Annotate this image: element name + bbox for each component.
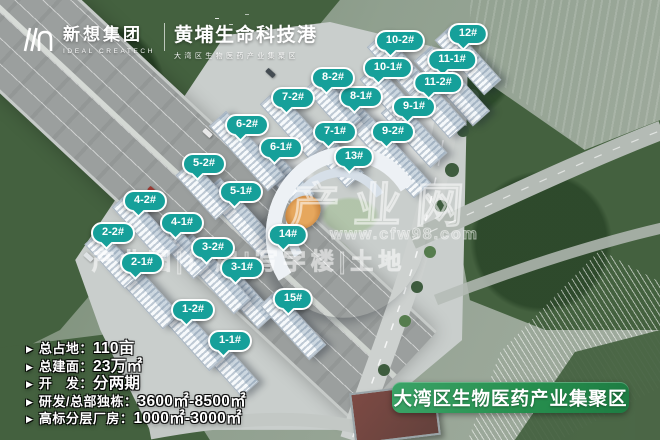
stat-row: ▶总建面：23万㎡ — [26, 359, 246, 377]
project-subtitle: 大湾区生物医药产业集聚区 — [174, 51, 318, 61]
label-tail — [234, 129, 247, 142]
building-label: 5-2# — [182, 153, 226, 175]
label-tail — [380, 136, 393, 149]
label-tail — [268, 152, 281, 165]
building-label: 11-2# — [413, 72, 463, 94]
label-tail — [169, 227, 182, 240]
bullet-triangle-icon: ▶ — [26, 377, 33, 393]
building-label-text: 9-1# — [403, 100, 425, 112]
poster-canvas: 产业网 www.cfw98.com 产业园|厂房|写字楼|土地 1-1#1-2#… — [0, 0, 660, 440]
label-tail — [132, 205, 145, 218]
building-label: 7-1# — [313, 121, 357, 143]
stat-label: 总占地： — [39, 341, 93, 357]
label-tail — [384, 45, 397, 58]
building-label-text: 5-2# — [193, 157, 215, 169]
building-label: 10-1# — [363, 57, 413, 79]
project-title: 黄埔生命科技港 — [174, 20, 318, 47]
building-label-text: 2-2# — [102, 226, 124, 238]
building-label: 14# — [268, 224, 308, 246]
building-label-text: 7-2# — [282, 91, 304, 103]
stat-value: 分两期 — [93, 376, 140, 392]
building-label: 9-1# — [392, 96, 436, 118]
building-label: 3-1# — [220, 257, 264, 279]
building-label-text: 8-2# — [322, 71, 344, 83]
building-label: 12# — [448, 23, 488, 45]
building-label-text: 4-2# — [134, 194, 156, 206]
building-label: 6-1# — [259, 137, 303, 159]
stat-label: 高标分层厂房： — [39, 411, 134, 427]
stats-list: ▶总占地：110亩▶总建面：23万㎡▶开 发：分两期▶研发/总部独栋：3600㎡… — [26, 341, 246, 429]
label-tail — [200, 252, 213, 265]
building-label: 2-2# — [91, 222, 135, 244]
stat-row: ▶总占地：110亩 — [26, 341, 246, 359]
building-label-text: 2-1# — [131, 256, 153, 268]
project-block: 黄埔生命科技港 大湾区生物医药产业集聚区 — [174, 20, 318, 61]
stat-row: ▶研发/总部独栋：3600㎡-8500㎡ — [26, 394, 246, 412]
building-label-text: 6-2# — [236, 118, 258, 130]
building-label: 4-2# — [123, 190, 167, 212]
company-name: 新想集团 — [63, 20, 155, 45]
label-tail — [180, 314, 193, 327]
label-tail — [348, 101, 361, 114]
label-tail — [129, 267, 142, 280]
building-label: 13# — [334, 146, 374, 168]
header: 新想集团 IDEAL CREATECH 黄埔生命科技港 大湾区生物医药产业集聚区 — [18, 20, 318, 62]
company-name-en: IDEAL CREATECH — [63, 48, 155, 55]
company-logo-icon — [18, 21, 54, 62]
header-divider — [164, 23, 165, 51]
label-tail — [229, 272, 242, 285]
building-label-text: 6-1# — [270, 141, 292, 153]
building-label: 3-2# — [191, 237, 235, 259]
building-label-text: 3-1# — [231, 261, 253, 273]
building-label-text: 7-1# — [324, 125, 346, 137]
building-label-text: 4-1# — [171, 216, 193, 228]
building-label: 8-1# — [339, 86, 383, 108]
building-label-text: 12# — [459, 27, 477, 39]
building-label: 11-1# — [427, 49, 477, 71]
building-label-text: 13# — [345, 150, 363, 162]
stat-value: 23万㎡ — [93, 359, 142, 375]
label-tail — [343, 161, 356, 174]
building-label: 2-1# — [120, 252, 164, 274]
stat-row: ▶开 发：分两期 — [26, 376, 246, 394]
building-label: 8-2# — [311, 67, 355, 89]
bullet-triangle-icon: ▶ — [26, 412, 33, 428]
banner: 大湾区生物医药产业集聚区 — [392, 382, 629, 413]
building-label: 5-1# — [219, 181, 263, 203]
company-block: 新想集团 IDEAL CREATECH — [63, 20, 155, 55]
building-label-text: 15# — [284, 292, 302, 304]
building-label-text: 14# — [279, 228, 297, 240]
label-tail — [372, 72, 385, 85]
building-label-text: 3-2# — [202, 241, 224, 253]
stat-label: 开 发： — [39, 376, 93, 392]
label-tail — [191, 168, 204, 181]
building-label-text: 8-1# — [350, 90, 372, 102]
building-label: 1-2# — [171, 299, 215, 321]
bullet-triangle-icon: ▶ — [26, 360, 33, 376]
building-label: 9-2# — [371, 121, 415, 143]
label-tail — [228, 196, 241, 209]
stat-label: 研发/总部独栋： — [39, 394, 138, 410]
building-label-text: 1-2# — [182, 303, 204, 315]
building-label-text: 9-2# — [382, 125, 404, 137]
label-tail — [277, 239, 290, 252]
building-label: 4-1# — [160, 212, 204, 234]
stat-row: ▶高标分层厂房：1000㎡-3000㎡ — [26, 411, 246, 429]
building-label: 6-2# — [225, 114, 269, 136]
bullet-triangle-icon: ▶ — [26, 395, 33, 411]
stat-label: 总建面： — [39, 359, 93, 375]
stat-value: 3600㎡-8500㎡ — [138, 394, 246, 410]
building-label-text: 5-1# — [230, 185, 252, 197]
label-tail — [322, 136, 335, 149]
building-label: 15# — [273, 288, 313, 310]
stat-value: 110亩 — [93, 341, 135, 357]
stat-value: 1000㎡-3000㎡ — [133, 411, 241, 427]
building-label: 7-2# — [271, 87, 315, 109]
label-tail — [100, 237, 113, 250]
building-label: 10-2# — [375, 30, 425, 52]
label-tail — [280, 102, 293, 115]
label-tail — [320, 82, 333, 95]
bullet-triangle-icon: ▶ — [26, 342, 33, 358]
label-tail — [282, 303, 295, 316]
